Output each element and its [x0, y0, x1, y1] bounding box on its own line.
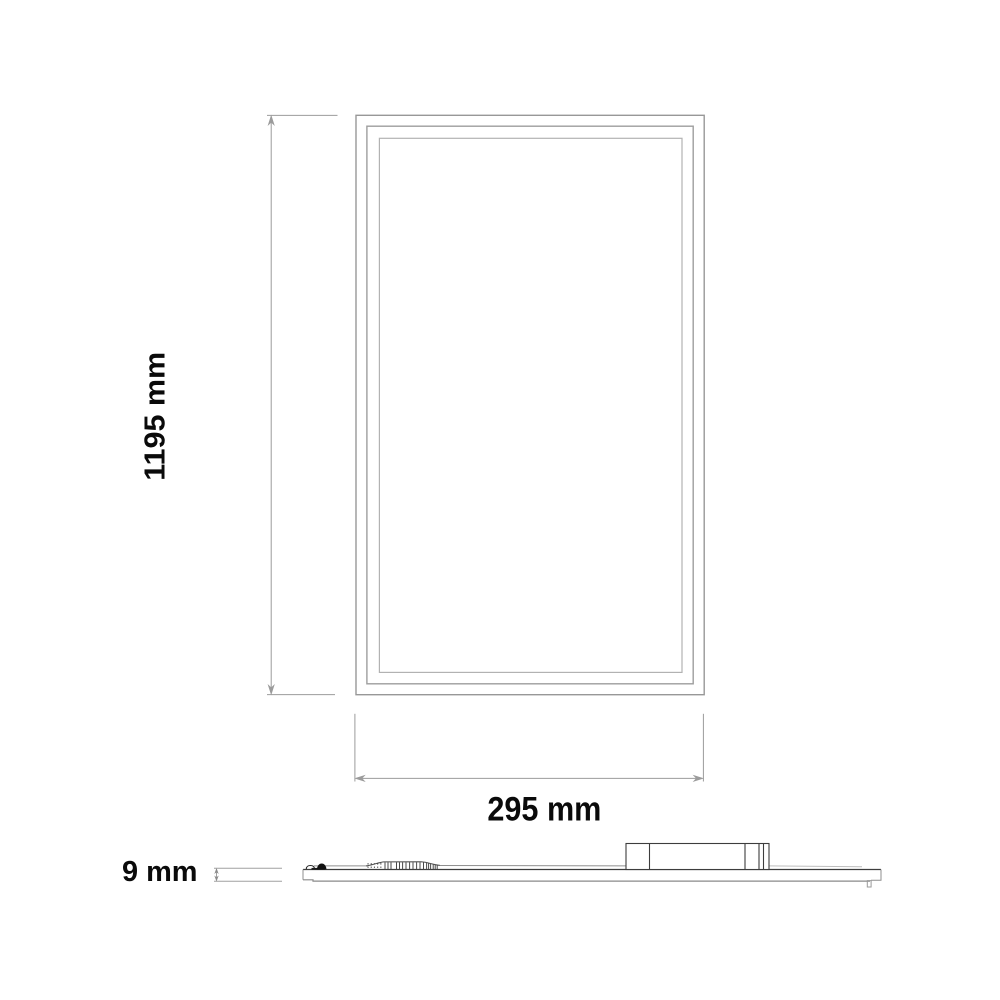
svg-text:1195 mm: 1195 mm — [140, 352, 172, 481]
svg-text:9 mm: 9 mm — [122, 855, 198, 887]
svg-text:295 mm: 295 mm — [487, 790, 601, 828]
